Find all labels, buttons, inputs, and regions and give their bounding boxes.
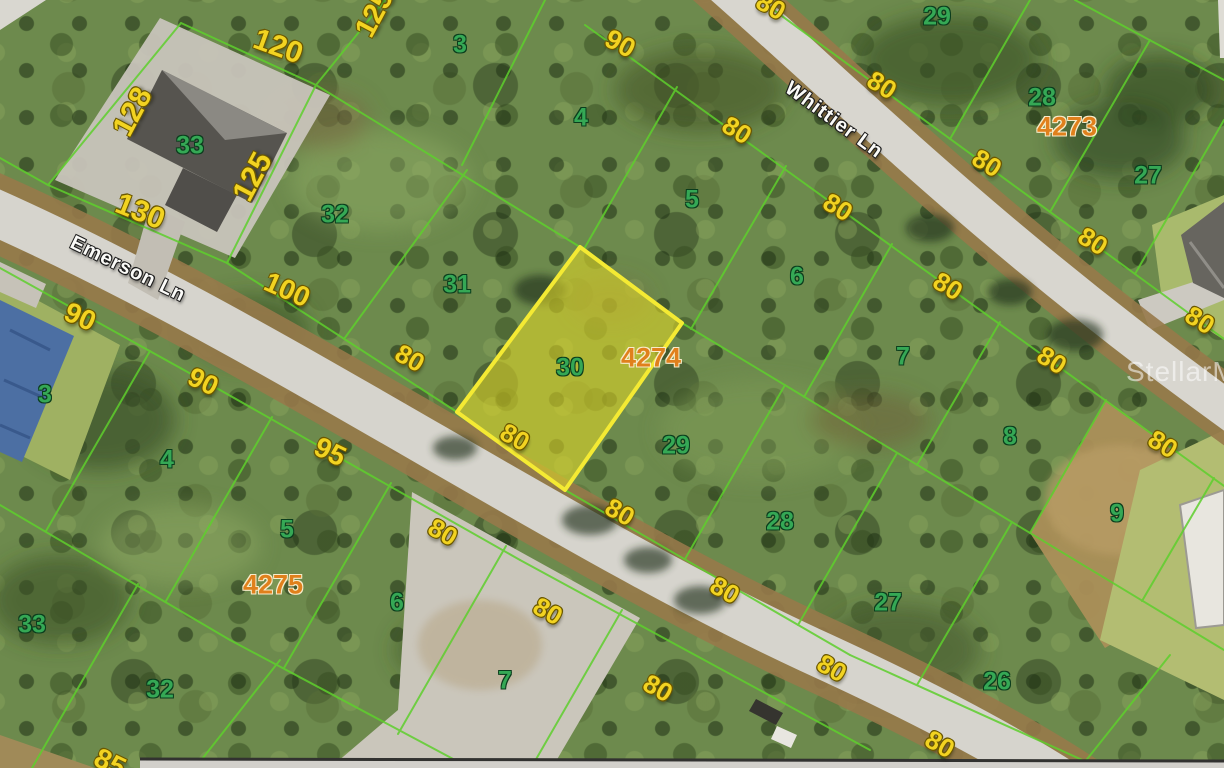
lot-number-label: 26 [983, 670, 1011, 695]
lot-number-label: 28 [766, 510, 794, 535]
lot-number-label: 4 [160, 448, 174, 473]
lot-number-label: 7 [896, 345, 910, 370]
block-number-label: 4274 [621, 345, 681, 372]
lot-number-label: 32 [146, 678, 174, 703]
lot-number-label: 33 [18, 613, 46, 638]
lot-number-label: 4 [574, 106, 588, 131]
block-number-label: 4273 [1037, 114, 1097, 141]
lot-number-label: 27 [1134, 164, 1162, 189]
lot-number-label: 3 [38, 383, 52, 408]
aerial-plat-map: 1201251281251301009090958590808080808080… [0, 0, 1224, 768]
lot-number-label: 8 [1003, 425, 1017, 450]
lot-number-label: 31 [443, 273, 471, 298]
lot-number-label: 32 [321, 203, 349, 228]
lot-number-label: 7 [498, 669, 512, 694]
photo-edge [140, 759, 1224, 768]
lot-number-label: 30 [556, 356, 584, 381]
lot-number-label: 29 [923, 5, 951, 30]
lot-number-label: 9 [1110, 502, 1124, 527]
block-number-label: 4275 [243, 572, 303, 599]
lot-number-label: 5 [280, 518, 294, 543]
stellar-mls-watermark: StellarMLS [1126, 358, 1224, 386]
lot-number-label: 27 [874, 591, 902, 616]
lot-number-label: 33 [176, 134, 204, 159]
lot-number-label: 3 [453, 33, 467, 58]
car [749, 699, 783, 725]
trailer [771, 726, 797, 748]
lot-number-label: 29 [662, 434, 690, 459]
lot-number-label: 6 [390, 591, 404, 616]
lot-number-label: 5 [685, 188, 699, 213]
lot-number-label: 28 [1028, 86, 1056, 111]
lot-number-label: 6 [790, 265, 804, 290]
